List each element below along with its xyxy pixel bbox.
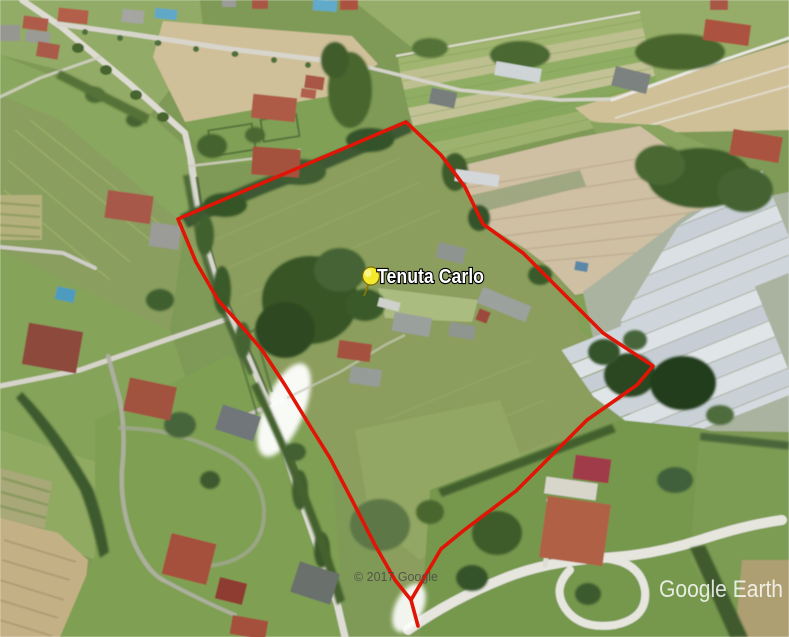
- svg-text:Tenuta Carlo: Tenuta Carlo: [377, 266, 484, 288]
- svg-text:Google Earth: Google Earth: [659, 576, 783, 603]
- svg-text:© 2017 Google: © 2017 Google: [354, 569, 438, 584]
